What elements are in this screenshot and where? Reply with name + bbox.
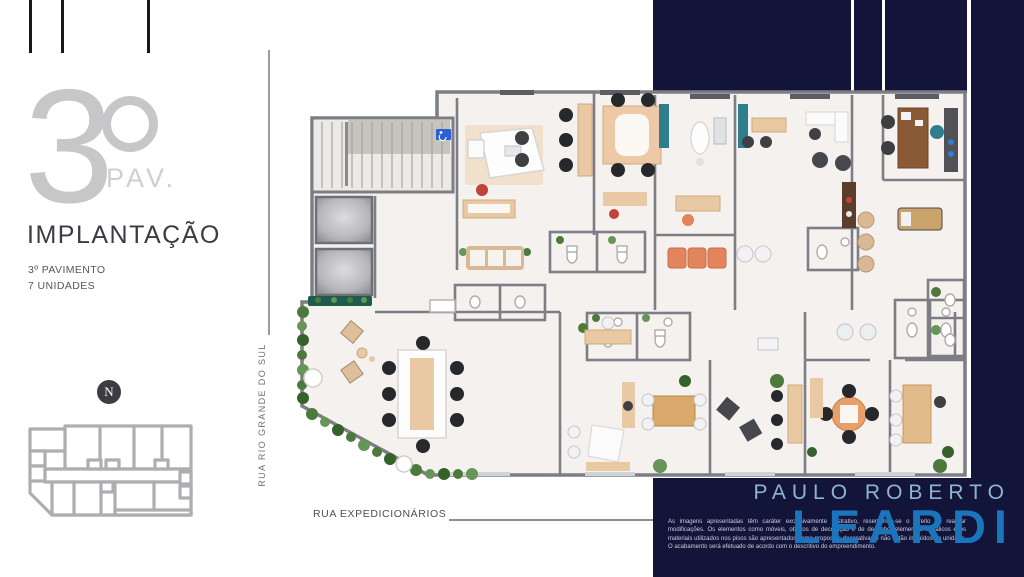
- decorative-tick-line: [61, 0, 64, 53]
- unit-reception: [463, 125, 544, 270]
- ordinal-ring-icon: [102, 96, 158, 152]
- decorative-tick-line: [29, 0, 32, 53]
- detail-pavimento: 3º PAVIMENTO: [28, 262, 106, 278]
- meeting-table: [382, 336, 464, 453]
- navy-band-separator: [882, 0, 885, 93]
- accessibility-sign-icon: [436, 129, 451, 141]
- floor-number: 3: [24, 66, 108, 228]
- training-counter: [559, 104, 592, 176]
- landscaping-hedge: [297, 296, 478, 480]
- floor-suffix: PAV.: [106, 163, 177, 194]
- plan-footprint: [302, 92, 965, 475]
- page: 3 PAV. IMPLANTAÇÃO 3º PAVIMENTO 7 UNIDAD…: [0, 0, 1024, 577]
- unit-lower-lunch: [810, 324, 879, 444]
- compass-letter: N: [104, 384, 113, 400]
- terrace-lounge: [304, 321, 412, 472]
- interior-walls: [312, 92, 965, 475]
- window-accents: [430, 90, 939, 476]
- unit-office: [737, 104, 856, 262]
- potted-plants: [459, 236, 954, 473]
- navy-band-top: [653, 0, 967, 93]
- branding-panel: PAULO ROBERTO LEARDI As imagens apresent…: [653, 478, 1024, 577]
- street-label-vertical: RUA RIO GRANDE DO SUL: [257, 333, 267, 497]
- street-label-horizontal: RUA EXPEDICIONÁRIOS: [313, 508, 446, 520]
- unit-executive: [858, 108, 958, 272]
- navy-band-separator: [851, 0, 854, 93]
- mini-building-outline: [22, 414, 222, 534]
- floor-details: 3º PAVIMENTO 7 UNIDADES: [28, 262, 106, 295]
- unit-exam-room: [659, 104, 726, 268]
- detail-unidades: 7 UNIDADES: [28, 278, 106, 294]
- decorative-tick-line: [147, 0, 150, 53]
- unit-lower-mid: [716, 338, 802, 450]
- compass-north-icon: N: [97, 380, 121, 404]
- vertical-divider-line: [268, 50, 270, 335]
- page-title: IMPLANTAÇÃO: [27, 221, 221, 250]
- stair-core: [312, 118, 453, 192]
- unit-lower-left: [568, 317, 706, 471]
- bathroom-fixtures: [470, 238, 955, 347]
- street-underline: [449, 519, 655, 521]
- brand-name-logo: LEARDI: [792, 499, 1015, 554]
- unit-conference: [603, 93, 661, 219]
- unit-lower-right: [890, 385, 946, 446]
- elevator-shafts: [316, 197, 372, 295]
